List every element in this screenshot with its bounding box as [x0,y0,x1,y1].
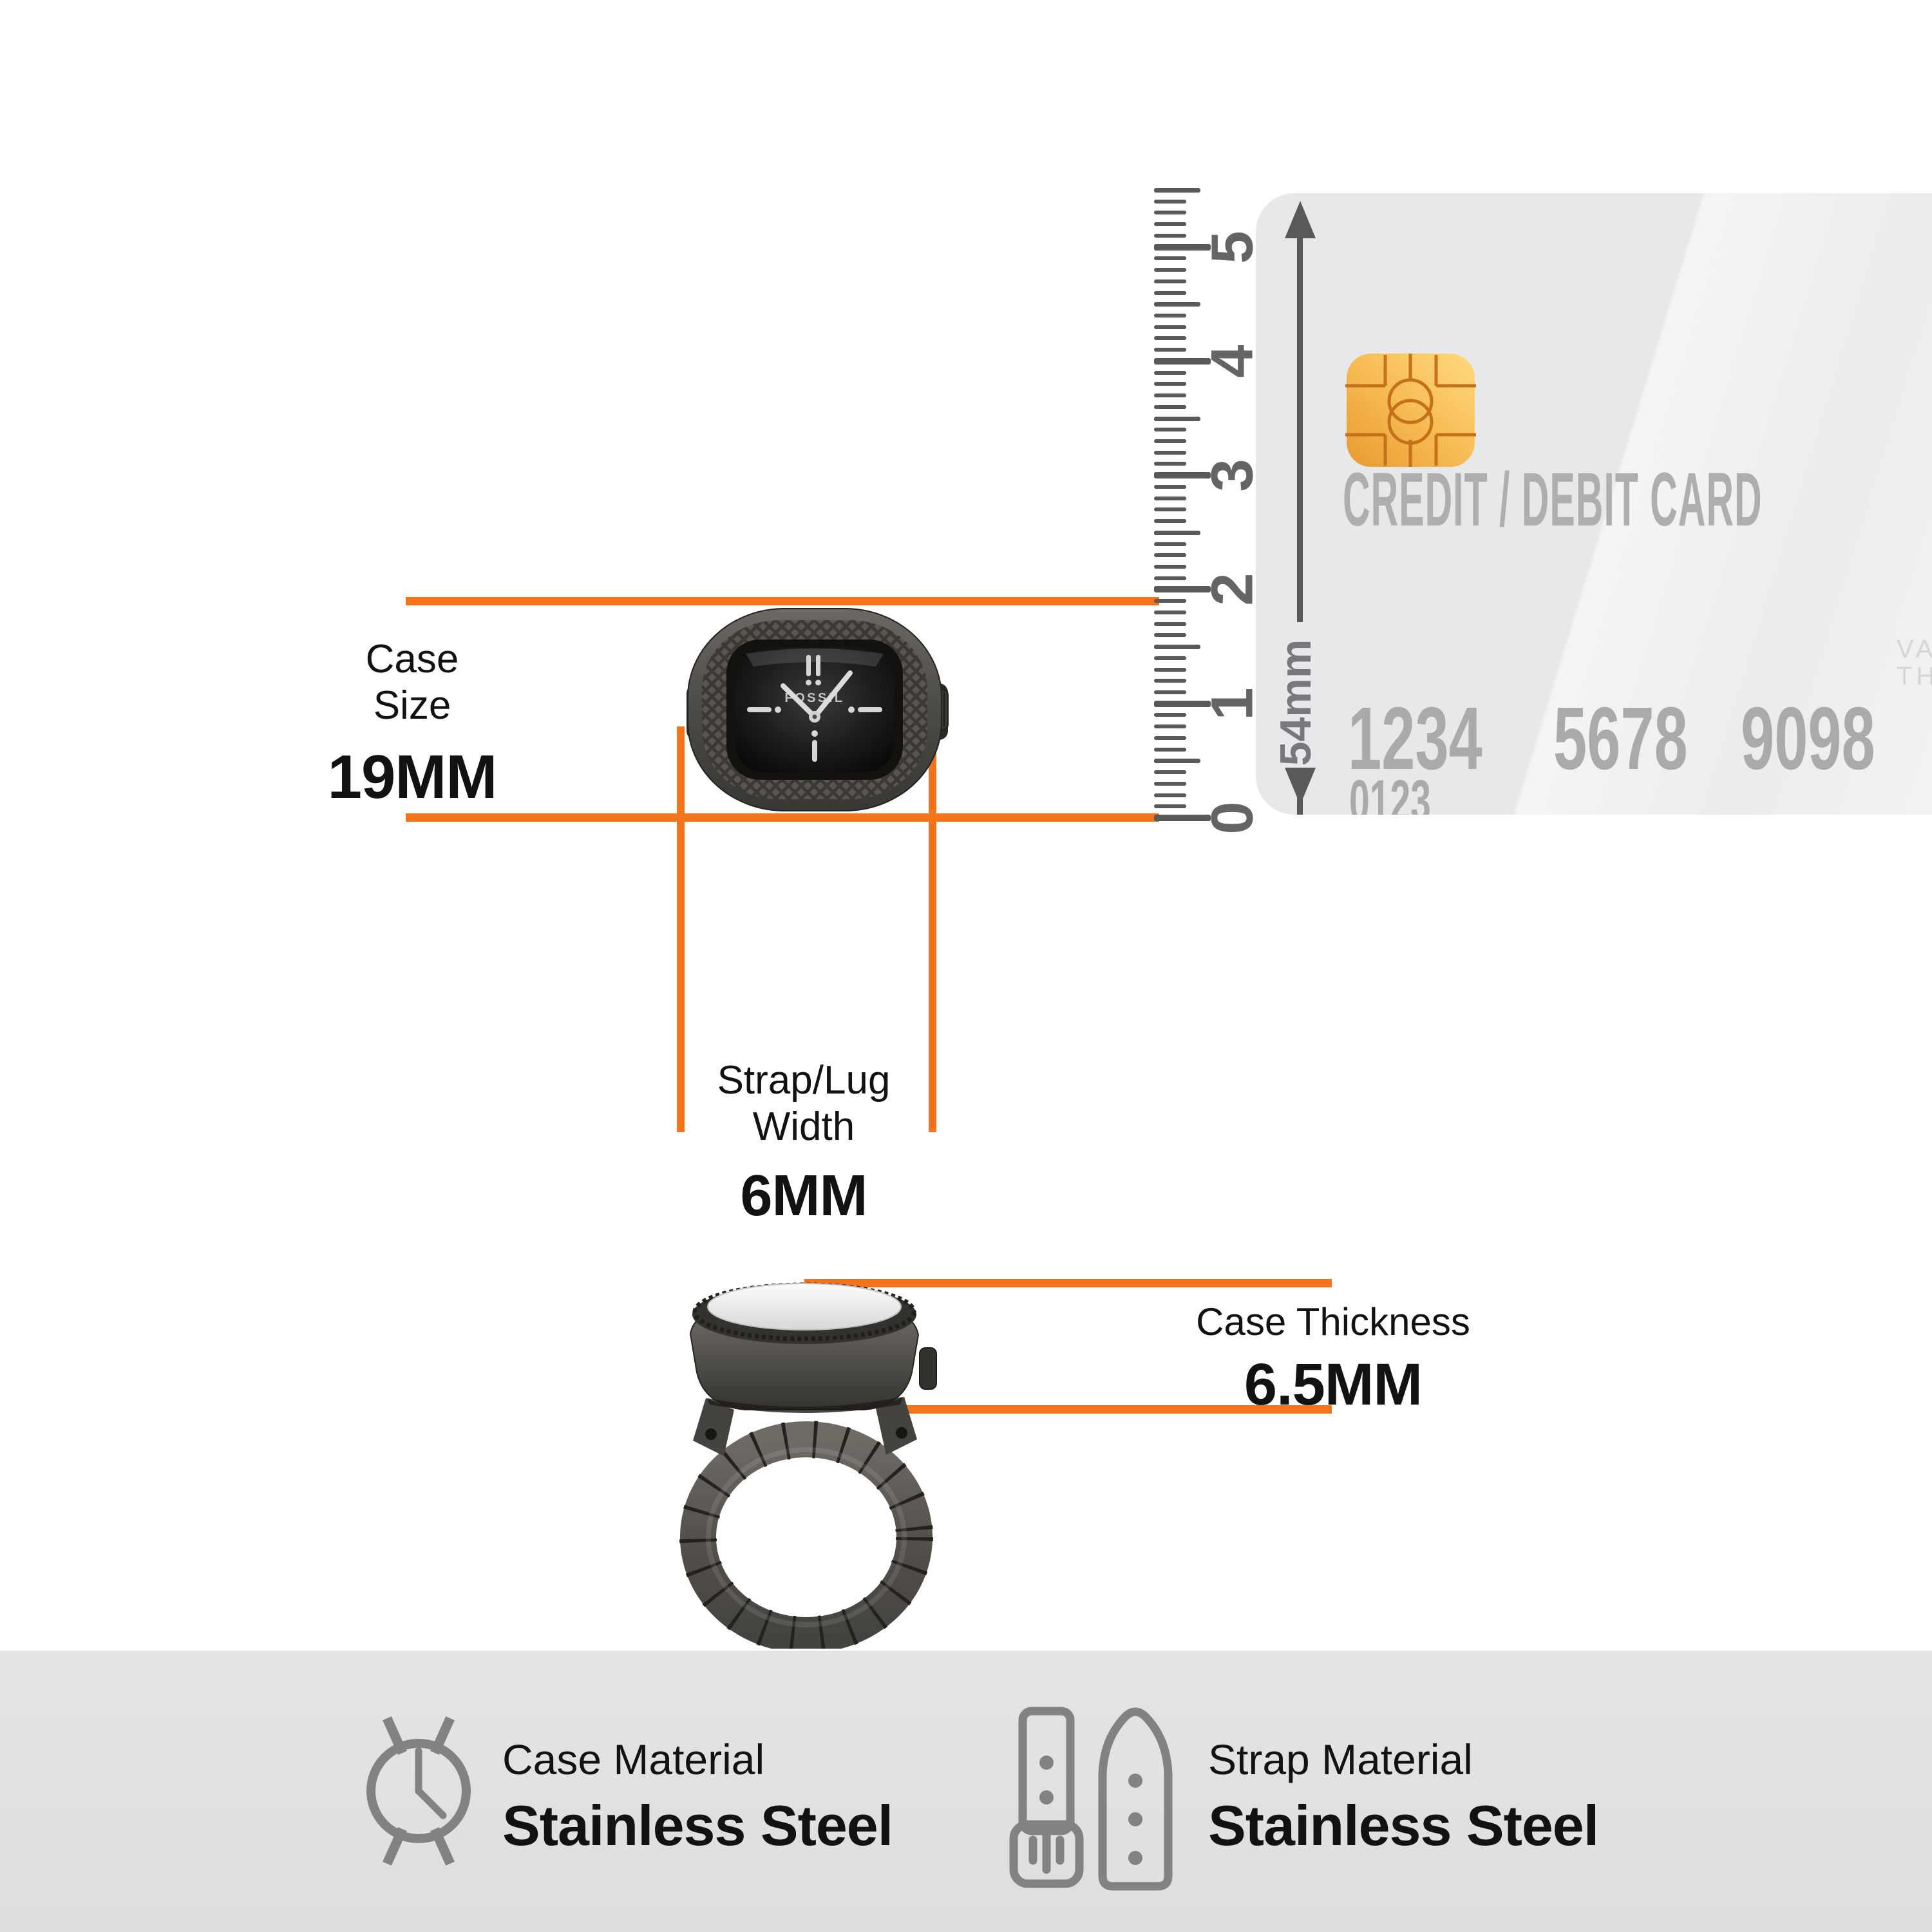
ruler-tick [1154,405,1186,409]
ruler-tick [1154,793,1186,797]
ruler-tick [1154,724,1186,728]
strap-width-value: 6MM [668,1163,939,1229]
ruler-tick [1154,439,1186,443]
strap-material-value: Stainless Steel [1208,1797,1598,1854]
case-material-value: Stainless Steel [502,1797,893,1854]
ruler-tick [1154,770,1186,774]
strap-width-label-line2: Width [668,1104,939,1150]
ruler-tick [1154,804,1186,808]
card-number-group-2: 5678 [1553,694,1751,783]
ruler-tick [1154,279,1186,283]
ruler-tick [1154,451,1186,455]
buckle-strap-icon [1023,1711,1070,1831]
ruler-tick [1154,679,1186,683]
case-material-label: Case Material [502,1738,893,1781]
ruler-tick [1154,268,1186,272]
ruler-tick [1154,485,1186,489]
ruler-tick [1154,417,1200,421]
case-thickness-value: 6.5MM [1179,1351,1488,1419]
ruler-tick [1154,348,1186,352]
ruler-tick [1154,336,1186,340]
ruler-tick [1154,748,1186,752]
card-valid-clipped-1: VAL [1897,636,1932,662]
strap-width-label-line1: Strap/Lug [668,1057,939,1104]
ruler-tick [1154,462,1186,466]
case-thickness-label-line1: Case Thickness [1179,1300,1488,1345]
card-valid-clipped-2: THR [1897,663,1932,689]
case-size-label: Case Size 19MM [277,636,547,813]
credit-card: CREDIT / DEBIT CARD 1234 5678 9098 0123 … [1256,193,1932,815]
ruler-tick [1154,645,1200,649]
ruler-tick [1154,302,1200,307]
ruler-tick [1154,314,1186,317]
watch-glass-top [708,1283,901,1330]
ruler-tick [1154,622,1186,626]
card-expiry-number: 0123 [1349,772,1481,815]
ruler-tick [1154,542,1186,546]
card-height-arrow-down-icon [1285,768,1316,805]
case-size-line-bottom [406,813,1159,822]
ruler-tick [1154,291,1186,295]
watch-ring-side-view [652,1272,958,1649]
card-height-arrow-up-icon [1285,201,1316,238]
ruler-tick [1154,393,1186,397]
materials-footer: Case Material Stainless Steel Strap Mate… [0,1651,1932,1932]
ruler-tick [1154,599,1186,603]
strap-width-label: Strap/Lug Width 6MM [668,1057,939,1229]
ruler: 012345 [1154,185,1257,829]
ruler-tick [1154,325,1186,329]
strap-icons [1006,1703,1193,1897]
ruler-tick [1154,713,1186,717]
ruler-tick [1154,656,1186,660]
ruler-tick [1154,256,1186,260]
ruler-tick [1154,188,1200,193]
strap-material-text: Strap Material Stainless Steel [1208,1738,1598,1854]
ruler-tick [1154,200,1186,204]
case-size-label-line1: Case [277,636,547,683]
ruler-tick [1154,428,1186,431]
ruler-tick [1154,553,1186,557]
ruler-tick [1154,736,1186,740]
case-material-text: Case Material Stainless Steel [502,1738,893,1854]
card-number-group-3: 9098 [1741,694,1932,783]
case-thickness-label: Case Thickness 6.5MM [1179,1300,1488,1419]
ruler-tick [1154,211,1186,214]
ruler-tick [1154,782,1186,786]
case-size-line-top [406,597,1159,605]
strap-material-label: Strap Material [1208,1738,1598,1781]
ruler-tick [1154,690,1186,694]
ruler-tick [1154,576,1186,580]
watch-ring-top-view: FOSSIL [687,607,952,813]
ruler-ticks: 012345 [1154,185,1257,829]
case-size-value: 19MM [277,742,547,813]
ruler-tick [1154,222,1186,226]
ruler-tick [1154,668,1186,672]
ruler-tick [1154,497,1186,500]
ruler-tick [1154,371,1186,375]
case-size-label-line2: Size [277,683,547,729]
ruler-tick [1154,611,1186,614]
watch-case-icon [353,1710,488,1872]
ruler-tick [1154,633,1186,637]
watch-bracelet-ring [698,1439,914,1635]
ruler-tick [1154,382,1186,386]
ruler-tick [1154,519,1186,523]
card-height-value: 54mm [1271,639,1321,766]
ruler-tick [1154,565,1186,569]
card-chip-icon [1345,352,1476,468]
ruler-tick [1154,531,1200,535]
card-title: CREDIT / DEBIT CARD [1343,456,1932,544]
card-height-arrow-shaft-top [1297,236,1303,622]
ruler-tick [1154,759,1200,763]
ruler-tick [1154,234,1186,238]
infographic-canvas: 012345 CREDIT / DEBIT CARD 1234 5678 909… [0,0,1932,1932]
ruler-tick [1154,507,1186,511]
